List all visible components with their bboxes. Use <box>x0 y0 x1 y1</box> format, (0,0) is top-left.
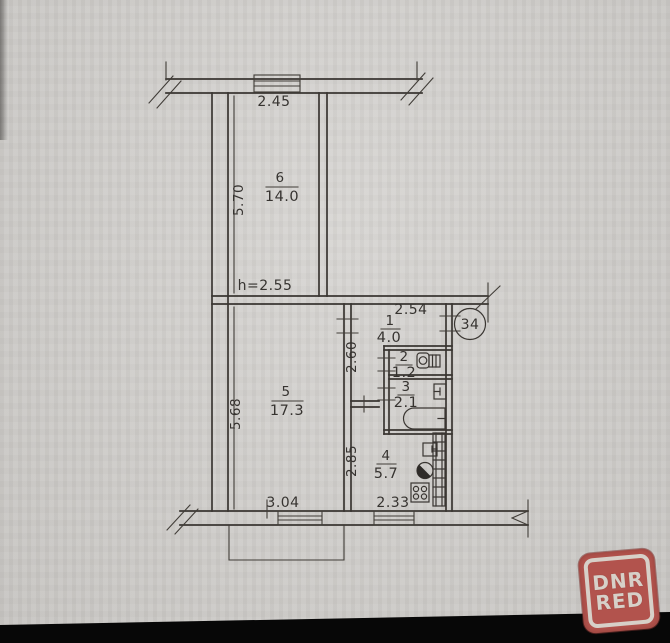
room5-area: 17.3 <box>270 403 304 419</box>
kitchen-basin-icon <box>423 443 437 456</box>
washbasin-icon <box>434 384 446 399</box>
window-symbol-room6 <box>254 75 300 92</box>
floor-plan-drawing: 34 6 14.0 5 17.3 1 4.0 2 1.2 3 2.1 4 <box>0 0 670 643</box>
watermark-frame: DNR RED <box>583 553 655 628</box>
watermark-logo: DNR RED <box>578 548 661 634</box>
sink-icon <box>417 463 433 479</box>
dim-room6-depth: 5.70 <box>231 184 247 216</box>
balcony-outline <box>229 526 344 560</box>
watermark-line2: RED <box>595 589 645 614</box>
dim-hall-depth: 2.60 <box>344 341 360 373</box>
window-symbol-room5 <box>278 511 322 525</box>
wall-break-marks <box>149 62 528 537</box>
room1-area: 4.0 <box>377 330 402 346</box>
dim-room5-width: 3.04 <box>266 495 299 511</box>
room-labels: 6 14.0 5 17.3 1 4.0 2 1.2 3 2.1 4 5.7 <box>265 170 418 482</box>
apartment-number: 34 <box>461 317 480 333</box>
vent-shaft-icon <box>433 433 445 506</box>
room6-number: 6 <box>275 170 284 186</box>
dim-room5-depth: 5.68 <box>228 398 244 430</box>
stove-icon <box>411 483 429 502</box>
room1-number: 1 <box>385 313 394 329</box>
room5-number: 5 <box>281 384 290 400</box>
dim-room6-width: 2.45 <box>257 94 290 110</box>
scanned-floor-plan-photo: 34 6 14.0 5 17.3 1 4.0 2 1.2 3 2.1 4 <box>0 0 670 643</box>
room4-area: 5.7 <box>374 466 399 482</box>
toilet-icon <box>417 353 440 368</box>
room3-area: 2.1 <box>394 395 419 411</box>
room4-number: 4 <box>381 448 390 464</box>
dim-kitchen-depth: 2.85 <box>344 445 360 477</box>
bathtub-icon <box>404 408 445 429</box>
dim-hall-width: 2.54 <box>394 302 427 318</box>
ceiling-height-label: h=2.55 <box>238 278 293 294</box>
room6-area: 14.0 <box>265 189 299 205</box>
room3-number: 3 <box>401 379 410 395</box>
apartment-number-badge: 34 <box>455 309 486 340</box>
dim-kitchen-window-width: 2.33 <box>376 495 409 511</box>
window-symbol-kitchen <box>374 511 414 525</box>
room2-number: 2 <box>399 349 408 365</box>
